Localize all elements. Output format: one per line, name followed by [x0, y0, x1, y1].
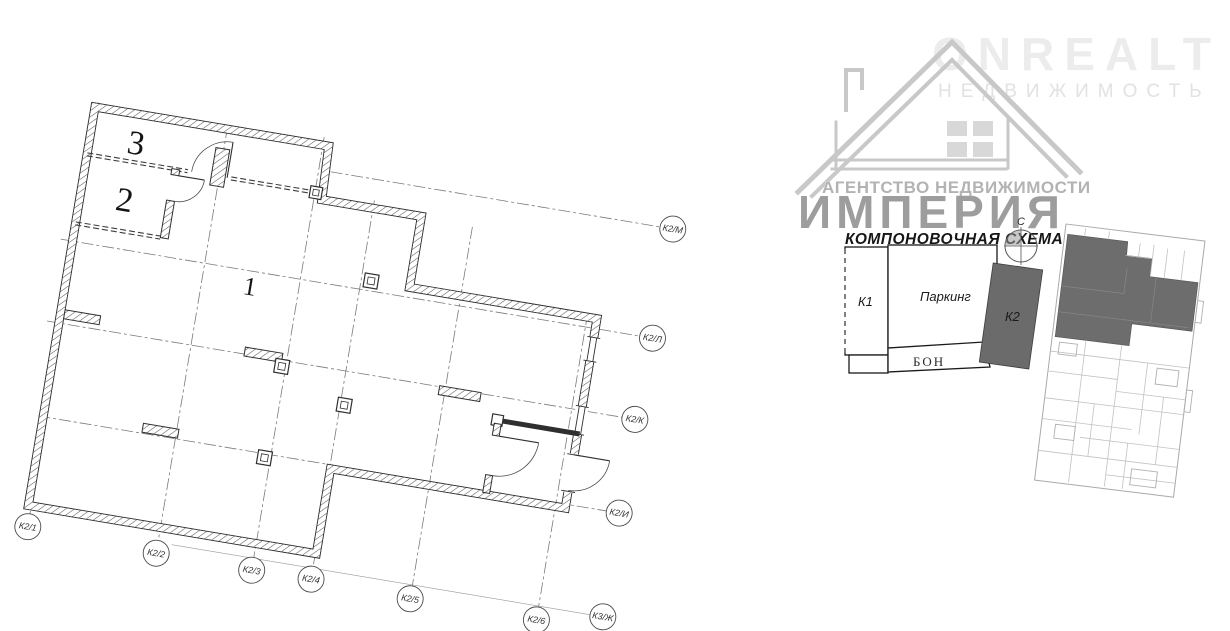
axis-marker-k2-2: К2/2: [141, 538, 171, 568]
wall-stub: [438, 386, 481, 402]
axis-marker-k2-4: К2/4: [296, 564, 326, 594]
plan-axis-grid: [14, 97, 666, 616]
column: [336, 397, 352, 413]
block-k1-step: [849, 355, 888, 373]
block-parking-label: Паркинг: [920, 289, 971, 304]
watermark-brand-text: ONREALT: [932, 28, 1221, 80]
watermark-brand-subtitle: НЕДВИЖИМОСТЬ: [938, 81, 1211, 102]
room-label-3: 3: [125, 124, 148, 163]
partition-room2: [75, 222, 160, 239]
wall-stub: [142, 423, 179, 438]
house-window: [947, 121, 993, 157]
main-floor-plan: 1 2 3 К2/1 К2/2 К2/3 К2/4 К2/5 К2/6: [10, 97, 691, 631]
room-label-2: 2: [113, 181, 136, 220]
axis-marker-k2-5: К2/5: [395, 584, 425, 614]
room2-wall: [160, 169, 205, 244]
block-bon-label: БОН: [913, 354, 945, 369]
column: [256, 450, 272, 466]
wall-stub: [64, 310, 101, 325]
layout-scheme: КОМПОНОВОЧНАЯ СХЕМА С К1 Паркинг БОН К2: [845, 216, 1063, 373]
block-k2-label: К2: [1005, 309, 1021, 324]
watermark-logo: ONREALT НЕДВИЖИМОСТЬ АГЕНТСТВО НЕДВИЖИМО…: [798, 28, 1221, 238]
entrance-door: [561, 453, 610, 499]
column: [363, 273, 379, 289]
building-minimap: [1035, 224, 1211, 498]
window-opening: [583, 336, 600, 362]
axis-marker-k2-l: К2/Л: [638, 323, 668, 353]
wall-stub-with-column: [242, 347, 291, 374]
axis-marker-k2-1: К2/1: [13, 512, 43, 542]
axis-marker-k3-zh: К3/Ж: [588, 602, 618, 631]
axis-marker-k2-k: К2/К: [620, 404, 650, 434]
listing-image: ONREALT НЕДВИЖИМОСТЬ АГЕНТСТВО НЕДВИЖИМО…: [0, 0, 1230, 631]
north-label: С: [1017, 216, 1025, 228]
plan-outer-walls: [28, 107, 617, 593]
dimension-baseline: [172, 545, 590, 615]
axis-marker-k2-i: К2/И: [604, 498, 634, 528]
room-label-1: 1: [241, 271, 259, 302]
wall-pier: [210, 148, 230, 188]
floor-plan-canvas: ONREALT НЕДВИЖИМОСТЬ АГЕНТСТВО НЕДВИЖИМО…: [0, 0, 1230, 631]
chimney-shape: [846, 70, 862, 110]
axis-marker-k2-6: К2/6: [521, 605, 551, 631]
axis-marker-k2-m: К2/М: [658, 214, 688, 244]
block-k1-label: К1: [858, 294, 873, 309]
